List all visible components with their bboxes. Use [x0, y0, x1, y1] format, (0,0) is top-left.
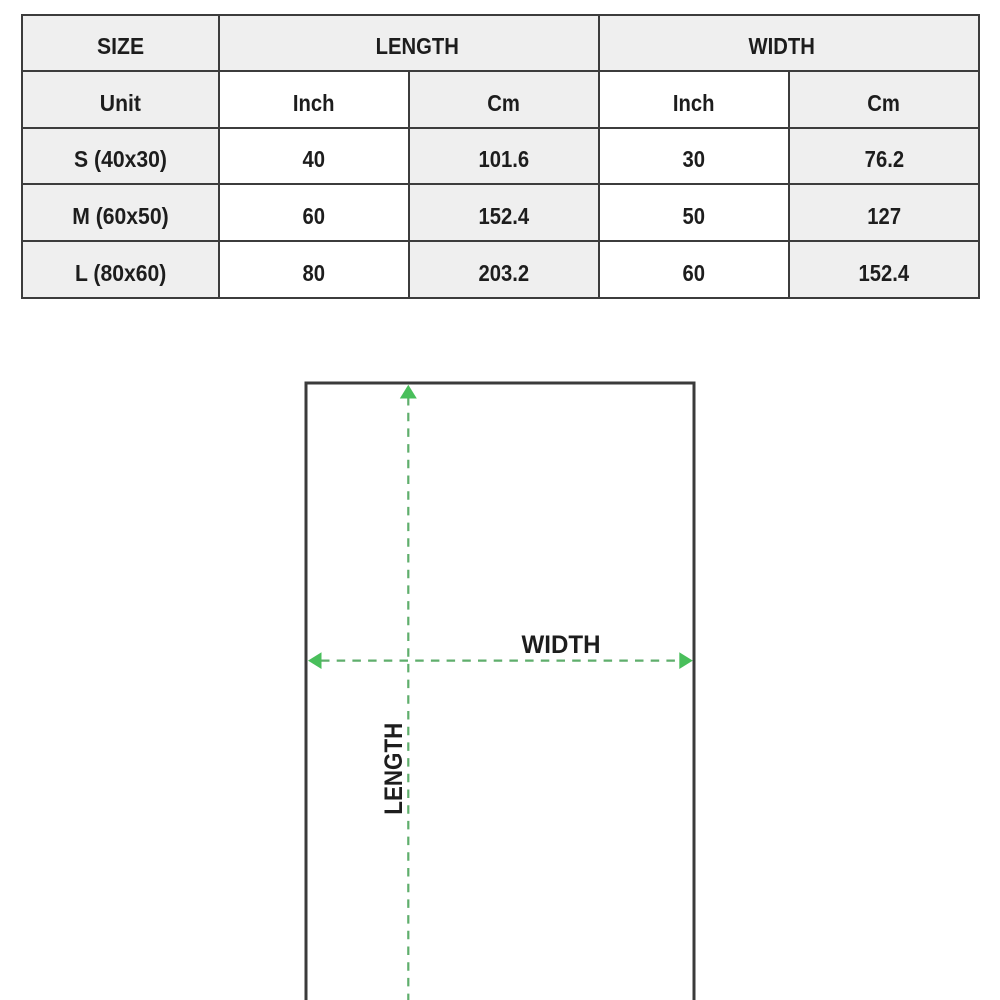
svg-text:LENGTH: LENGTH: [380, 723, 408, 815]
svg-text:WIDTH: WIDTH: [522, 631, 601, 659]
